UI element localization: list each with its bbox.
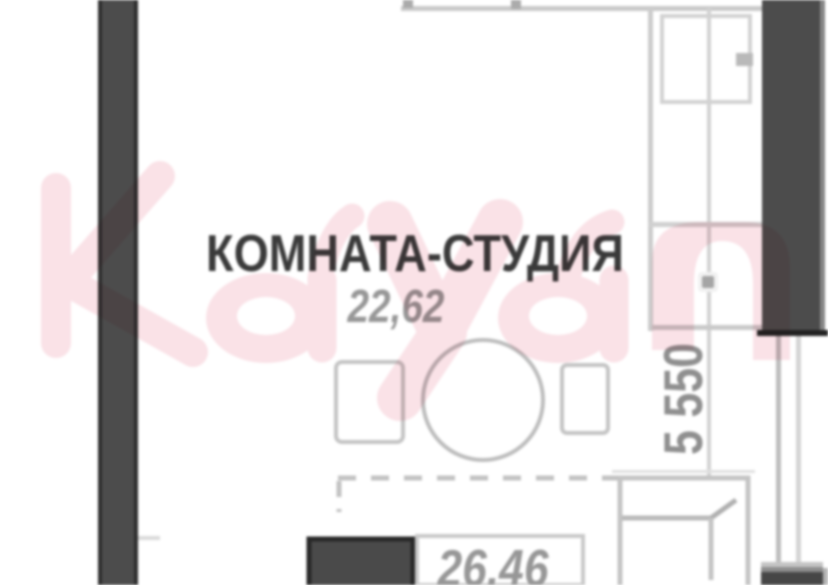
- svg-text:26,46: 26,46: [437, 540, 550, 585]
- svg-text:5 550: 5 550: [652, 343, 714, 455]
